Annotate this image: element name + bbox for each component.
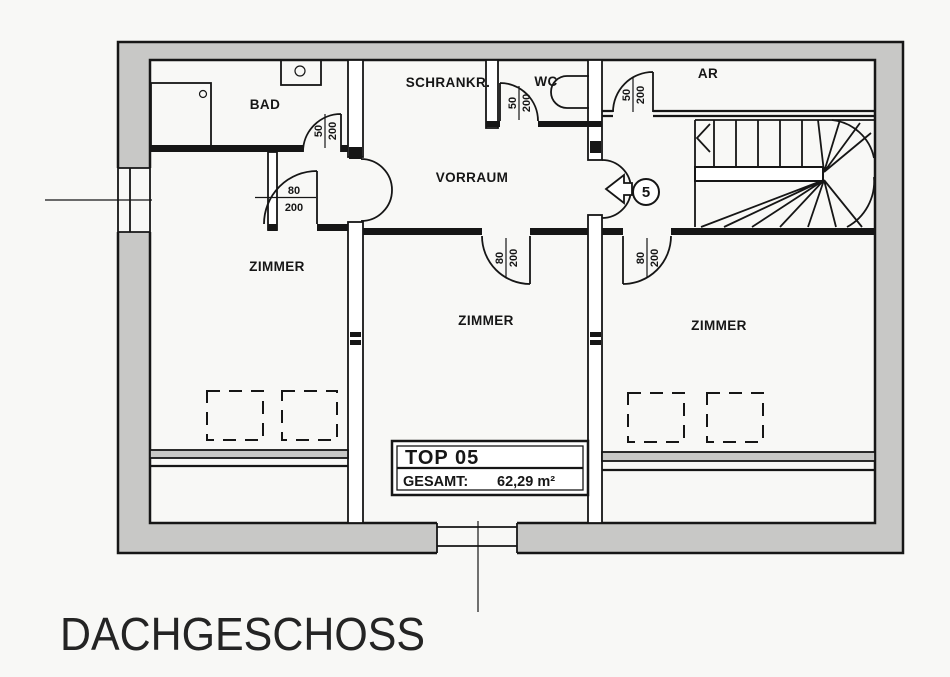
room-label-zimmer-right: ZIMMER — [691, 318, 747, 333]
door-ar: 50 200 — [613, 72, 653, 112]
furniture-dashed-rect — [707, 393, 763, 442]
entrance-arrow-icon — [606, 175, 632, 203]
wall-zimmer-left-middle — [348, 222, 363, 523]
wall-bad-schrankraum — [348, 60, 363, 157]
stair-winders-upper — [818, 120, 871, 172]
wall-bad-south-stub — [341, 145, 348, 152]
room-label-abstellraum: AR — [698, 66, 718, 81]
wall-joint-tick — [350, 332, 361, 337]
door-height-label: 200 — [649, 249, 661, 267]
wall-stair-south-2 — [671, 228, 875, 235]
wall-wc-west — [486, 60, 498, 128]
door-width-label: 80 — [635, 252, 647, 264]
door-height-label: 200 — [508, 249, 520, 267]
stair-well — [695, 167, 823, 181]
west-window — [45, 168, 154, 232]
furniture-dashed-rect — [282, 391, 337, 440]
wall-stair-south-1 — [602, 228, 623, 235]
wall-joint-tick — [590, 332, 601, 337]
door-zimmer-right: 80 200 — [623, 236, 671, 284]
wall-zimmer-middle-right — [588, 215, 602, 523]
door-zimmer-left: 80 200 — [255, 171, 317, 224]
door-width-label: 50 — [313, 125, 325, 137]
floorplan-page: 50 200 50 200 50 200 — [0, 0, 950, 677]
wall-wc-south-2 — [538, 121, 602, 127]
knee-wall-right — [602, 452, 875, 461]
total-area-value: 62,29 m² — [497, 474, 555, 490]
wall-bad-south — [150, 145, 303, 152]
room-label-schrankraum: SCHRANKR. — [406, 75, 491, 90]
knee-wall-left — [150, 450, 348, 458]
stair-curve-lower — [847, 177, 874, 227]
wall-ar-south — [602, 111, 875, 116]
door-zimmer-left-dimension: 80 200 — [255, 185, 316, 214]
washbasin-drain — [295, 66, 305, 76]
room-label-vorraum: VORRAUM — [436, 170, 509, 185]
apartment-entrance: 5 — [602, 160, 659, 218]
furniture-dashed-rect — [628, 393, 684, 442]
floorplan-drawing: 50 200 50 200 50 200 — [0, 0, 950, 677]
door-vorraum-lobby-swing — [361, 159, 392, 221]
door-wc-dimension: 50 200 — [507, 86, 533, 120]
shower-tray — [151, 83, 211, 147]
door-wc: 50 200 — [500, 83, 538, 121]
shower-drain — [200, 91, 207, 98]
wall-joint-tick — [350, 340, 361, 345]
door-width-label: 50 — [621, 89, 633, 101]
furniture-outlines — [207, 391, 763, 442]
door-width-label: 80 — [288, 185, 300, 197]
wall-wc-south-1 — [486, 121, 500, 127]
wall-vorraum-south-1 — [363, 228, 482, 235]
room-label-zimmer-middle: ZIMMER — [458, 313, 514, 328]
unit-label: TOP 05 — [405, 447, 479, 469]
south-window — [437, 521, 517, 612]
door-height-label: 200 — [327, 122, 339, 140]
wall-jamb-block — [590, 141, 601, 153]
room-label-bad: BAD — [250, 97, 280, 112]
stair-treads-upper — [714, 120, 802, 168]
door-height-label: 200 — [285, 202, 303, 214]
floor-title: DACHGESCHOSS — [60, 608, 425, 660]
door-height-label: 200 — [521, 94, 533, 112]
room-label-wc: WC — [534, 74, 557, 89]
door-zimmer-middle: 80 200 — [482, 236, 530, 284]
total-area-label: GESAMT: — [403, 474, 468, 490]
stair-direction-arrow — [697, 124, 710, 152]
furniture-dashed-rect — [207, 391, 263, 440]
washbasin — [281, 60, 321, 85]
door-zimmer-right-dimension: 80 200 — [635, 238, 661, 278]
unit-number-label: 5 — [642, 184, 650, 201]
door-height-label: 200 — [635, 86, 647, 104]
wall-vorraum-south-2 — [530, 228, 588, 235]
stair-winders-lower — [701, 180, 862, 227]
door-width-label: 80 — [494, 252, 506, 264]
room-label-zimmer-left: ZIMMER — [249, 259, 305, 274]
wall-joint-tick — [590, 340, 601, 345]
door-width-label: 50 — [507, 97, 519, 109]
door-bad-dimension: 50 200 — [313, 114, 339, 148]
staircase — [695, 120, 875, 227]
wall-jamb-block — [349, 147, 362, 159]
unit-info-box: TOP 05 GESAMT: 62,29 m² — [392, 441, 588, 495]
wall-lobby-south-east — [317, 224, 348, 231]
wall-lobby-south-west — [268, 224, 277, 231]
door-bad: 50 200 — [303, 114, 341, 152]
